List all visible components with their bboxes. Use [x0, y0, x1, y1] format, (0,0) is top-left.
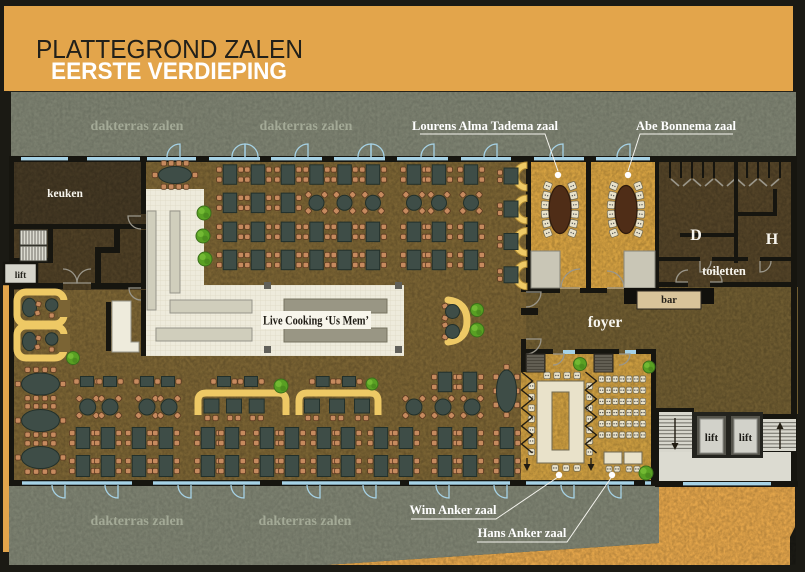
svg-text:foyer: foyer — [588, 314, 623, 331]
svg-text:keuken: keuken — [47, 188, 83, 200]
svg-text:dakterras zalen: dakterras zalen — [91, 514, 184, 529]
svg-text:Live Cooking ‘Us Mem’: Live Cooking ‘Us Mem’ — [263, 314, 369, 328]
svg-text:dakterras zalen: dakterras zalen — [91, 119, 184, 134]
svg-text:lift: lift — [705, 432, 719, 444]
svg-text:Abe Bonnema zaal: Abe Bonnema zaal — [636, 119, 737, 133]
svg-text:dakterras zalen: dakterras zalen — [260, 119, 353, 134]
svg-text:H: H — [766, 231, 779, 248]
svg-text:lift: lift — [739, 432, 753, 444]
svg-text:lift: lift — [15, 271, 27, 281]
svg-text:bar: bar — [661, 295, 677, 306]
svg-text:Wim Anker zaal: Wim Anker zaal — [409, 503, 497, 517]
svg-text:Lourens Alma Tadema zaal: Lourens Alma Tadema zaal — [412, 119, 558, 133]
svg-text:dakterras zalen: dakterras zalen — [259, 514, 352, 529]
svg-text:D: D — [690, 227, 702, 244]
svg-text:toiletten: toiletten — [702, 264, 746, 278]
svg-text:EERSTE VERDIEPING: EERSTE VERDIEPING — [51, 58, 287, 85]
svg-text:Hans Anker zaal: Hans Anker zaal — [478, 526, 567, 540]
